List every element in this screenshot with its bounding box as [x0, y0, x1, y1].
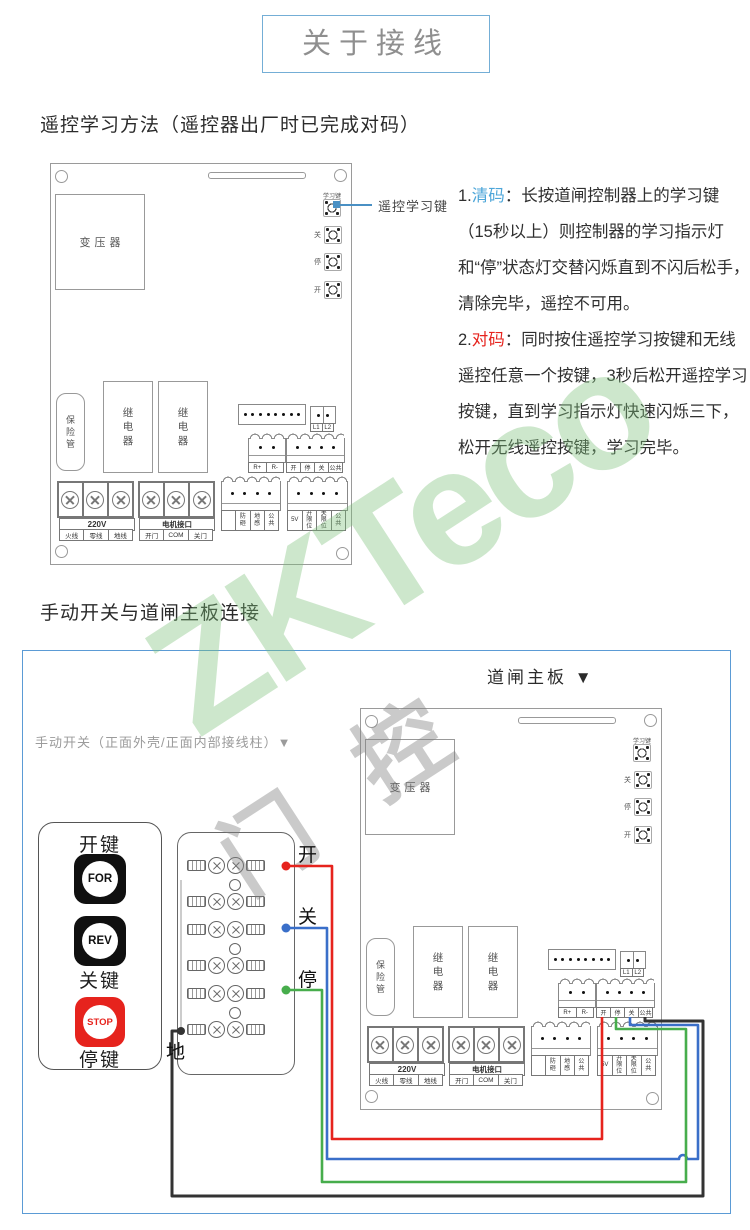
relay-box: 继电器 [468, 926, 518, 1018]
screw-icon [396, 1036, 414, 1054]
for-button-label: FOR [82, 861, 118, 897]
screw-icon [477, 1036, 495, 1054]
io-pin-close: 关 [315, 462, 329, 473]
io-connector-labels: 开 停 关 公共 [596, 1007, 653, 1018]
tact-open-label: 开 [314, 285, 321, 295]
tact-close-button: 关 [324, 226, 342, 244]
terminal-row [187, 957, 265, 974]
r-minus-label: R- [577, 1007, 595, 1018]
mounting-hole [646, 1092, 659, 1105]
motor-pin-labels: 开门COM关门 [449, 1074, 523, 1086]
tact-stop-button: 停 [324, 253, 342, 271]
r-minus-label: R- [267, 462, 285, 473]
section1-heading: 遥控学习方法（遥控器出厂时已完成对码） [40, 110, 420, 137]
io-pin-common: 公共 [329, 462, 343, 473]
callout-label: 遥控学习键 [378, 196, 448, 215]
relay-box: 继电器 [103, 381, 153, 473]
tact-close-label: 关 [314, 230, 321, 240]
screw-icon [452, 1036, 470, 1054]
wire-close-label: 关 [298, 902, 317, 929]
section2-heading: 手动开关与道闸主板连接 [40, 598, 260, 625]
learn-key-label: 学习键 [323, 191, 341, 200]
power-terminal-block [57, 481, 134, 518]
relay-box: 继电器 [413, 926, 463, 1018]
tact-stop-button: 停 [634, 798, 652, 816]
tact-open-label: 开 [624, 830, 631, 840]
screw-icon [371, 1036, 389, 1054]
board2-title: 道闸主板 ▼ [487, 663, 595, 688]
instruction-text: 1.清码：长按道闸控制器上的学习键（15秒以上）则控制器的学习指示灯和“停”状态… [458, 178, 750, 466]
terminal-panel [177, 832, 295, 1075]
io-connector [286, 438, 345, 463]
tact-open-button: 开 [324, 281, 342, 299]
stop-button-label: STOP [83, 1005, 117, 1039]
transformer-box: 变压器 [365, 739, 455, 835]
tact-close-label: 关 [624, 775, 631, 785]
screw-icon [142, 491, 160, 509]
sensor-pin-labels: 防砸 地感公共 [531, 1055, 589, 1076]
wire-open-label: 开 [298, 840, 317, 867]
motor-terminal-block [138, 481, 215, 518]
for-button: FOR [74, 854, 126, 904]
motor-pin-labels: 开门COM关门 [139, 529, 213, 541]
io-connector-labels: 开 停 关 公共 [286, 462, 343, 473]
stop-key-label: 停键 [39, 1045, 161, 1072]
relay-box: 继电器 [158, 381, 208, 473]
rev-button: REV [74, 916, 126, 966]
screw-icon [167, 491, 185, 509]
rev-button-label: REV [82, 923, 118, 959]
control-board: 变压器 学习键 关 停 开 保险管 继电器 继电器 L1 L2 R+ R- 开 … [50, 163, 352, 565]
limit-pin-labels: 5V开限位 关限位公共 [287, 510, 346, 531]
terminal-screw [229, 879, 241, 891]
io-pin-stop: 停 [301, 462, 315, 473]
pin-header-8pin [238, 404, 306, 425]
learn-key-button: 学习键 [633, 744, 651, 762]
l1-l2-labels: L1 L2 [620, 968, 644, 977]
l2-label: L2 [323, 423, 335, 432]
manual-switch-caption: 手动开关（正面外壳/正面内部接线柱）▼ [35, 732, 291, 751]
instruction-step-2: 2.对码：同时按住遥控学习按键和无线遥控任意一个按键，3秒后松开遥控学习按键，直… [458, 322, 750, 466]
screw-icon [61, 491, 79, 509]
r-plus-label: R+ [248, 462, 267, 473]
r-connector-labels: R+ R- [558, 1007, 594, 1018]
r-connector [248, 438, 286, 463]
terminal-row [187, 1021, 265, 1038]
terminal-row [187, 921, 265, 938]
r-connector-labels: R+ R- [248, 462, 284, 473]
tact-close-button: 关 [634, 771, 652, 789]
control-board: 变压器 学习键 关 停 开 保险管 继电器 继电器 L1 L2 R+ R- 开 … [360, 708, 662, 1110]
instruction-step-1: 1.清码：长按道闸控制器上的学习键（15秒以上）则控制器的学习指示灯和“停”状态… [458, 178, 750, 322]
transformer-box: 变压器 [55, 194, 145, 290]
mounting-hole [365, 715, 378, 728]
power-pin-labels: 火线零线地线 [369, 1074, 443, 1086]
l1-l2-connector [620, 951, 646, 969]
wire-stop-label: 停 [298, 965, 317, 992]
mounting-hole [336, 547, 349, 560]
mounting-hole [55, 545, 68, 558]
open-key-label: 开键 [39, 830, 161, 857]
io-pin-common: 公共 [639, 1007, 653, 1018]
l2-label: L2 [633, 968, 645, 977]
io-pin-open: 开 [286, 462, 301, 473]
r-plus-label: R+ [558, 1007, 577, 1018]
motor-terminal-block [448, 1026, 525, 1063]
sensor-connector [221, 481, 281, 511]
power-terminal-block [367, 1026, 444, 1063]
limit-connector [287, 481, 348, 511]
fuse-box: 保险管 [56, 393, 85, 471]
io-pin-stop: 停 [611, 1007, 625, 1018]
terminal-row [187, 893, 265, 910]
l1-l2-labels: L1 L2 [310, 423, 334, 432]
sensor-connector [531, 1026, 591, 1056]
power-pin-labels: 火线零线地线 [59, 529, 133, 541]
screw-icon [112, 491, 130, 509]
l1-l2-connector [310, 406, 336, 424]
l1-label: L1 [620, 968, 633, 977]
tact-open-button: 开 [634, 826, 652, 844]
fuse-box: 保险管 [366, 938, 395, 1016]
io-connector [596, 983, 655, 1008]
l1-label: L1 [310, 423, 323, 432]
page-title: 关于接线 [262, 15, 490, 73]
screw-icon [86, 491, 104, 509]
limit-pin-labels: 5V开限位 关限位公共 [597, 1055, 656, 1076]
callout-line [338, 204, 372, 206]
limit-connector [597, 1026, 658, 1056]
pair-code-keyword: 对码 [472, 331, 505, 349]
terminal-row [187, 985, 265, 1002]
close-key-label: 关键 [39, 966, 161, 993]
io-pin-close: 关 [625, 1007, 639, 1018]
sensor-pin-labels: 防砸 地感公共 [221, 510, 279, 531]
io-pin-open: 开 [596, 1007, 611, 1018]
mounting-hole [644, 714, 657, 727]
switch-shell: 开键 FOR REV 关键 STOP 停键 [38, 822, 162, 1070]
screw-icon [422, 1036, 440, 1054]
tact-stop-label: 停 [314, 257, 321, 267]
stop-button: STOP [75, 997, 125, 1047]
mounting-hole [55, 170, 68, 183]
pin-header-8pin [548, 949, 616, 970]
r-connector [558, 983, 596, 1008]
pcb-slot [208, 172, 306, 179]
terminal-screw [229, 943, 241, 955]
mounting-hole [365, 1090, 378, 1103]
learn-key-label: 学习键 [633, 736, 651, 745]
screw-icon [193, 491, 211, 509]
tact-stop-label: 停 [624, 802, 631, 812]
wire-ground-label: 地 [166, 1037, 185, 1064]
terminal-screw [229, 1007, 241, 1019]
terminal-row [187, 857, 265, 874]
screw-icon [503, 1036, 521, 1054]
clear-code-keyword: 清码 [472, 187, 505, 205]
pcb-slot [518, 717, 616, 724]
mounting-hole [334, 169, 347, 182]
